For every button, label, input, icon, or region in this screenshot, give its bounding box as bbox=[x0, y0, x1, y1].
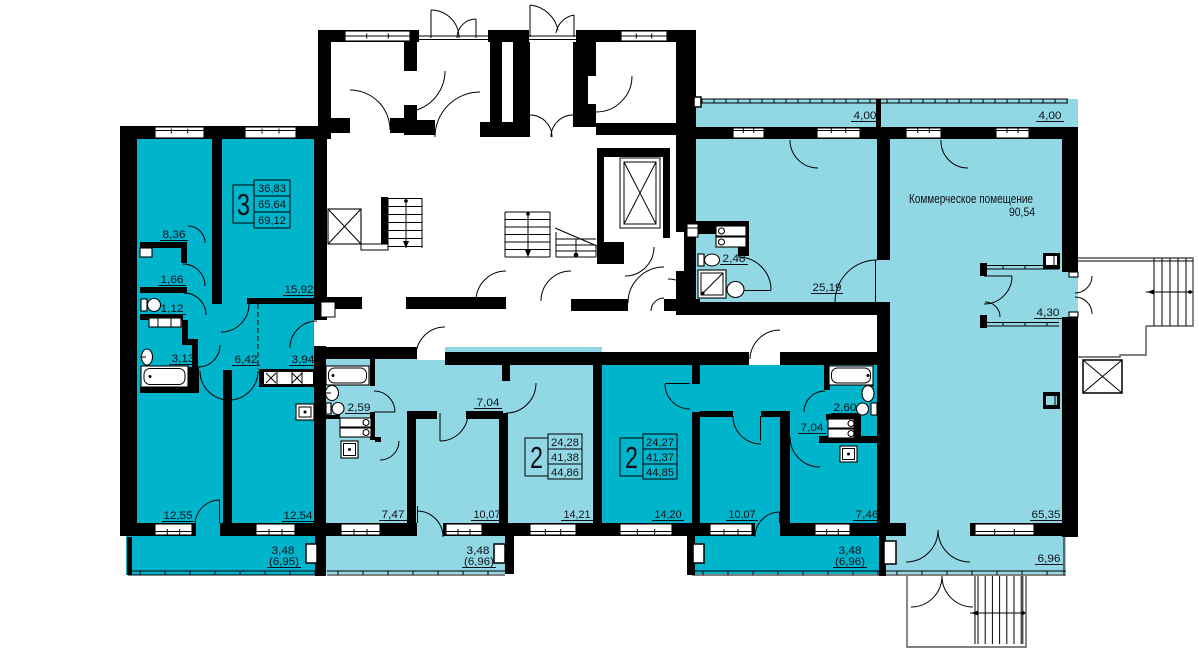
svg-text:41,38: 41,38 bbox=[551, 452, 579, 464]
svg-text:1,66: 1,66 bbox=[161, 274, 184, 286]
svg-text:2,59: 2,59 bbox=[348, 402, 371, 414]
svg-text:6,96: 6,96 bbox=[1038, 553, 1061, 565]
svg-text:44,85: 44,85 bbox=[646, 467, 674, 479]
svg-text:6,42: 6,42 bbox=[235, 354, 258, 366]
svg-text:2: 2 bbox=[625, 440, 638, 475]
svg-text:41,37: 41,37 bbox=[646, 452, 674, 464]
svg-text:10,07: 10,07 bbox=[474, 509, 501, 521]
svg-text:69,12: 69,12 bbox=[258, 215, 286, 227]
svg-text:25,19: 25,19 bbox=[813, 282, 842, 294]
svg-text:14,21: 14,21 bbox=[564, 509, 591, 521]
svg-text:10,07: 10,07 bbox=[729, 509, 756, 521]
svg-text:3,94: 3,94 bbox=[292, 354, 315, 366]
svg-text:(6,96): (6,96) bbox=[835, 556, 865, 568]
svg-text:(6,95): (6,95) bbox=[269, 556, 299, 568]
svg-text:8,36: 8,36 bbox=[163, 229, 186, 241]
svg-text:24,28: 24,28 bbox=[551, 437, 579, 449]
svg-text:44,86: 44,86 bbox=[551, 467, 579, 479]
svg-text:4,30: 4,30 bbox=[1037, 307, 1060, 319]
svg-text:65,64: 65,64 bbox=[258, 199, 286, 211]
svg-text:2,48: 2,48 bbox=[723, 253, 746, 265]
svg-text:14,20: 14,20 bbox=[655, 509, 682, 521]
svg-text:4,00: 4,00 bbox=[1039, 110, 1062, 122]
svg-text:(6,96): (6,96) bbox=[464, 556, 494, 568]
svg-text:24,27: 24,27 bbox=[646, 437, 674, 449]
svg-text:3,13: 3,13 bbox=[172, 353, 195, 365]
svg-text:65,35: 65,35 bbox=[1032, 509, 1061, 521]
svg-text:12,55: 12,55 bbox=[164, 510, 193, 522]
svg-text:90,54: 90,54 bbox=[1009, 205, 1035, 219]
svg-text:7,47: 7,47 bbox=[382, 509, 405, 521]
svg-text:7,46: 7,46 bbox=[856, 509, 879, 521]
svg-text:7,04: 7,04 bbox=[801, 422, 824, 434]
svg-text:4,00: 4,00 bbox=[854, 110, 877, 122]
svg-text:1,12: 1,12 bbox=[161, 303, 184, 315]
svg-text:2: 2 bbox=[530, 440, 543, 475]
svg-text:2,60: 2,60 bbox=[834, 402, 857, 414]
svg-text:36,83: 36,83 bbox=[258, 183, 286, 195]
svg-text:7,04: 7,04 bbox=[477, 397, 500, 409]
svg-text:12,54: 12,54 bbox=[284, 510, 313, 522]
svg-text:Коммерческое помещение: Коммерческое помещение bbox=[909, 191, 1033, 206]
svg-text:15,92: 15,92 bbox=[285, 284, 314, 296]
svg-text:3: 3 bbox=[237, 187, 250, 222]
